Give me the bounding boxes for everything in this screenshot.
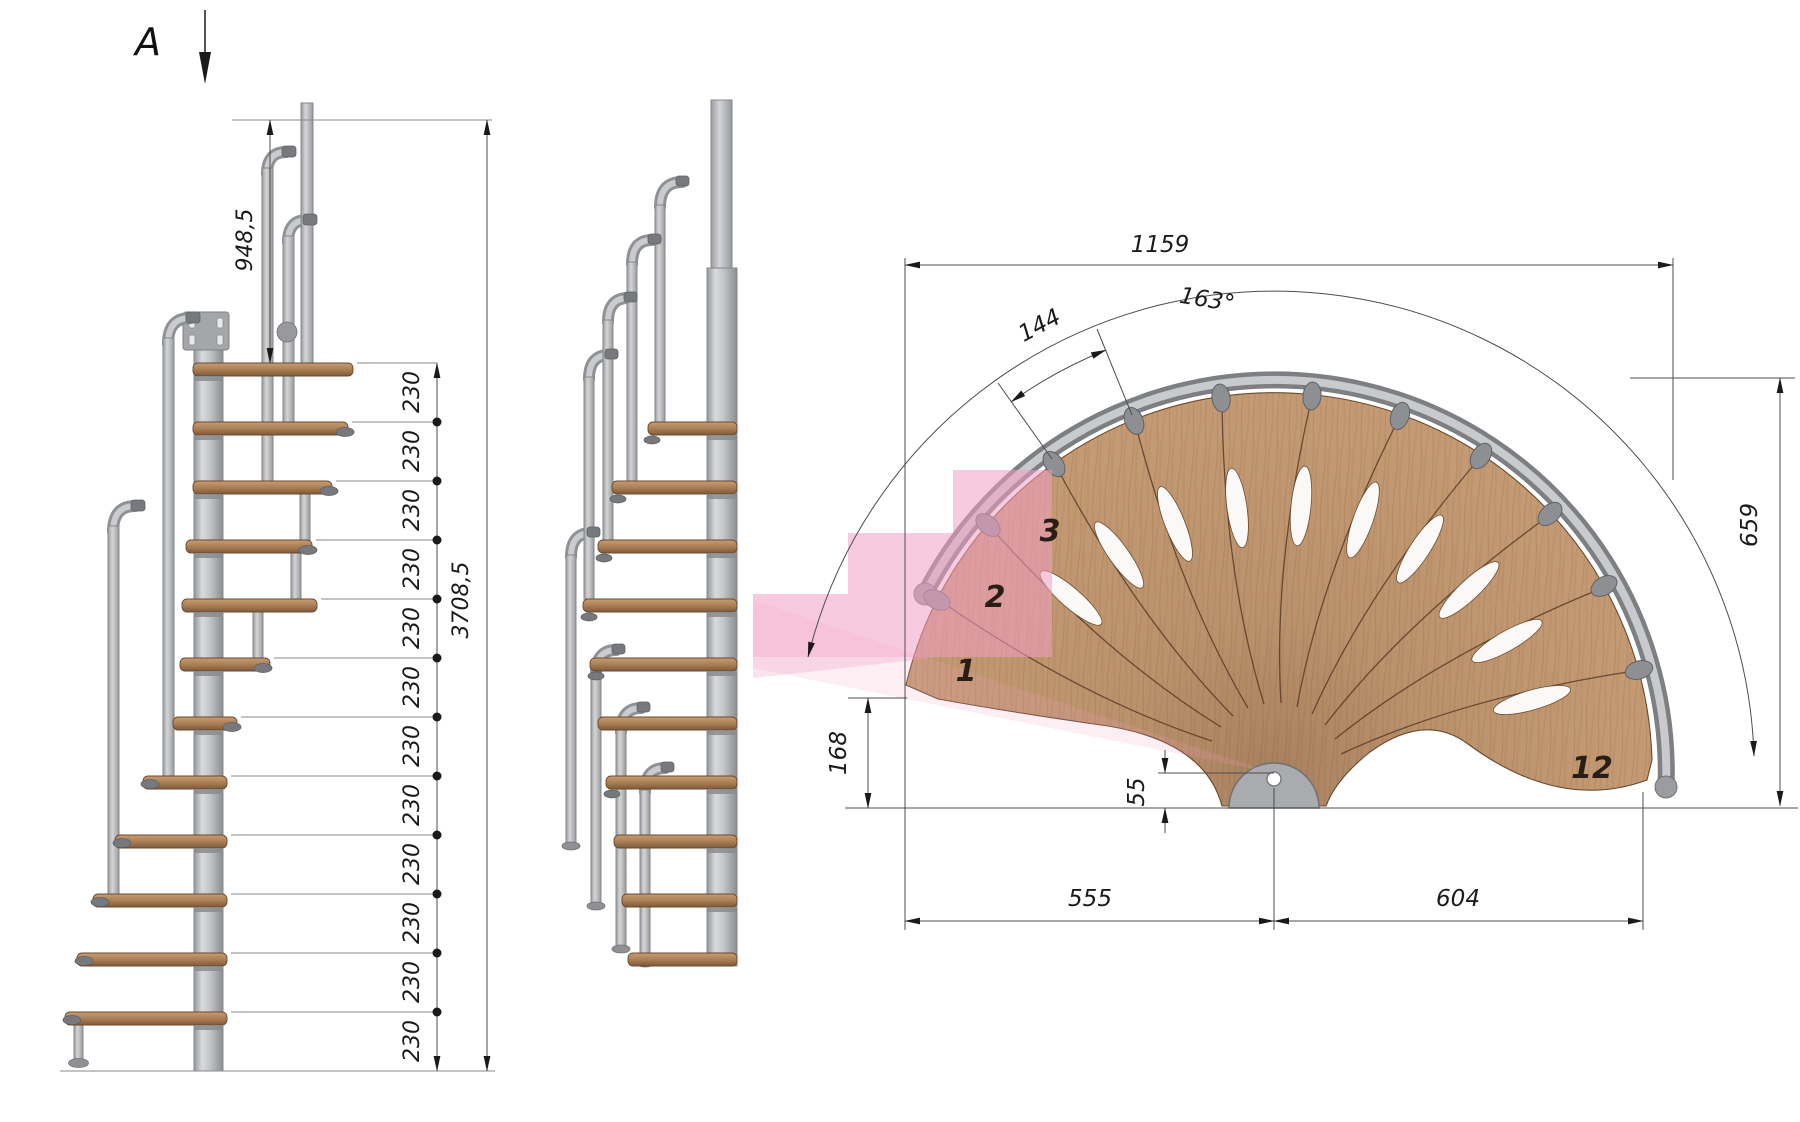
dim-230: 230: [400, 1020, 425, 1062]
dim-555: 555: [1068, 886, 1112, 912]
dim-230: 230: [400, 371, 425, 413]
section-arrow-head-icon: [199, 52, 211, 84]
dim-948-5: 948,5: [233, 209, 258, 272]
post-foot: [69, 1059, 89, 1068]
step-2-label: 2: [985, 580, 1006, 615]
dim-230: 230: [400, 666, 425, 708]
dim-230: 230: [400, 725, 425, 767]
dim-230: 230: [400, 902, 425, 944]
dim-168: 168: [826, 731, 852, 775]
section-label: A: [132, 20, 161, 64]
step-3-label: 3: [1040, 514, 1061, 549]
dim-1159: 1159: [1131, 232, 1190, 258]
dim-230: 230: [400, 784, 425, 826]
step-12-label: 12: [1571, 751, 1613, 786]
technical-drawing-canvas: A: [0, 0, 1800, 1122]
dim-144: 144: [1014, 304, 1065, 348]
dim-230: 230: [400, 843, 425, 885]
dim-163deg: 163°: [1178, 283, 1237, 317]
dim-3708-5: 3708,5: [449, 562, 474, 639]
elevation-view-front: [63, 103, 354, 1071]
section-marker: A: [132, 10, 211, 84]
handrail-end-cap: [1655, 776, 1677, 798]
dim-230: 230: [400, 961, 425, 1003]
dim-230: 230: [400, 607, 425, 649]
step-1-label: 1: [956, 654, 977, 689]
dim-144-line: [1011, 350, 1106, 402]
dim-55: 55: [1124, 777, 1150, 806]
dim-230: 230: [400, 489, 425, 531]
elevation-view-side: [562, 100, 738, 967]
dim-659: 659: [1737, 503, 1763, 547]
railing-posts: [69, 103, 318, 1068]
dim-230: 230: [400, 430, 425, 472]
dim-230: 230: [400, 548, 425, 590]
elevation-dimensions: 948,5 3708,5 230 230 230 230 230 230 230…: [60, 120, 495, 1071]
plan-view: 1 2 3 12: [753, 380, 1677, 808]
pole-top-tube: [711, 100, 732, 272]
staircase-drawing: A: [0, 0, 1800, 1122]
dim-604: 604: [1436, 886, 1480, 912]
pole-hole: [1267, 772, 1281, 786]
